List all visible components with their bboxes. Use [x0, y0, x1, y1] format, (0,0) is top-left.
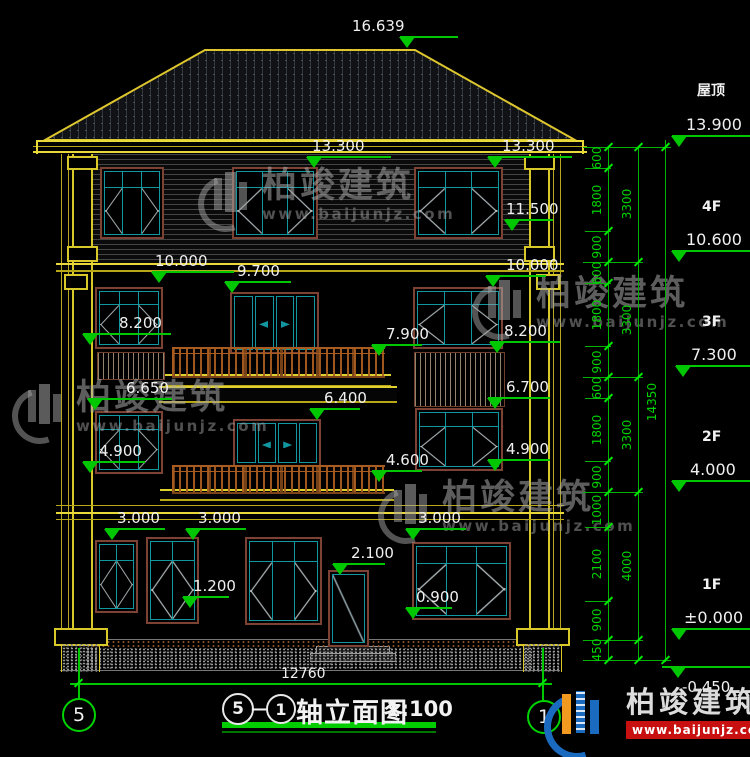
balcony-door-3f [230, 292, 319, 354]
eave-stub [36, 140, 38, 154]
level-value: ±0.000 [684, 608, 743, 627]
title-axis-to: 1 [266, 694, 296, 724]
floor-band [56, 263, 564, 265]
level-label: 2F [702, 429, 721, 445]
dim-value: 1000 [590, 495, 604, 526]
dim-value: 600 [590, 147, 604, 170]
elevation-value: 10.000 [155, 252, 208, 270]
entry-door [328, 570, 369, 647]
corner-pillar-left [72, 154, 93, 629]
balcony-railing-3f [172, 347, 385, 378]
dim-value: 3300 [620, 189, 634, 220]
axis-number: 5 [73, 704, 85, 726]
dim-value: 3300 [620, 305, 634, 336]
window-1f-left [146, 537, 199, 624]
drawing-scale: 1:100 [386, 697, 453, 721]
elevation-value: 7.900 [386, 325, 429, 343]
level-label: 屋顶 [697, 80, 725, 100]
window-1f-center [245, 537, 322, 625]
elevation-value: 3.000 [418, 509, 461, 527]
elevation-value: 8.200 [119, 314, 162, 332]
dim-chain-line [608, 147, 609, 660]
title-axis-from: 5 [222, 693, 254, 725]
dim-chain-line [665, 140, 666, 662]
hip-roof [30, 40, 590, 145]
pillar-corbel [64, 274, 88, 290]
dim-value: 900 [590, 609, 604, 632]
dim-value: 1800 [590, 300, 604, 331]
elevation-value: 0.900 [416, 588, 459, 606]
dim-value: 2100 [590, 549, 604, 580]
elevation-value: 3.000 [198, 509, 241, 527]
pillar-capital [524, 156, 555, 170]
elevation-value: 6.700 [506, 378, 549, 396]
elevation-value: 9.700 [237, 262, 280, 280]
spandrel-grille [97, 352, 165, 380]
dim-value: 3300 [620, 420, 634, 451]
level-value: 7.300 [691, 345, 737, 364]
floor-band [56, 270, 564, 272]
level-label: 1F [702, 577, 721, 593]
baijun-logo-icon [538, 686, 624, 752]
dim-value: 1800 [590, 185, 604, 216]
dim-value: 4000 [620, 551, 634, 582]
title-axis-number: 1 [275, 700, 286, 719]
level-label: 4F [702, 199, 721, 215]
dim-value: 600 [590, 262, 604, 285]
title-dash: — [251, 699, 267, 718]
elevation-value: 4.600 [386, 451, 429, 469]
elevation-value: 4.900 [506, 440, 549, 458]
level-value: 13.900 [686, 115, 742, 134]
logo-name: 柏竣建筑 [626, 686, 750, 719]
cad-elevation-canvas: 16.639 13.300 13.300 11.500 10.000 9.700… [0, 0, 750, 757]
dim-value: 450 [590, 639, 604, 662]
elevation-value: 11.500 [506, 200, 559, 218]
elevation-value: 16.639 [352, 17, 405, 35]
downspout-right [553, 154, 561, 630]
window-1f-small [95, 540, 138, 613]
balcony-railing-2f [172, 465, 385, 494]
ground-hatch-band [86, 640, 532, 648]
balcony-door-2f [233, 419, 321, 467]
elevation-value: 6.650 [126, 379, 169, 397]
axis-bubble-5: 5 [62, 698, 96, 732]
title-axis-number: 5 [232, 699, 244, 719]
window-4f-center [232, 167, 318, 239]
dim-chain-line [638, 147, 639, 660]
elevation-value: 13.300 [312, 137, 365, 155]
elevation-value: 4.900 [99, 442, 142, 460]
dim-value: 1800 [590, 415, 604, 446]
pillar-capital [67, 246, 98, 262]
window-4f-right [414, 167, 503, 239]
axis-extension [78, 648, 80, 698]
elevation-value: 13.300 [502, 137, 555, 155]
logo-url: www.baijunjz.com [626, 721, 750, 739]
dim-value: 900 [590, 351, 604, 374]
title-underline-thin [222, 731, 436, 733]
baijun-logo: 柏竣建筑 www.baijunjz.com [538, 686, 750, 752]
elevation-value: 8.200 [504, 322, 547, 340]
dim-value-total: 14350 [645, 383, 659, 421]
dim-value: 600 [590, 377, 604, 400]
dim-value: 900 [590, 466, 604, 489]
dim-value: 900 [590, 236, 604, 259]
window-4f-left [100, 167, 164, 239]
elevation-value: 2.100 [351, 544, 394, 562]
level-value: 4.000 [690, 460, 736, 479]
downspout-left [61, 154, 69, 630]
elevation-value: 10.000 [506, 256, 559, 274]
elevation-value: 6.400 [324, 389, 367, 407]
level-label: 3F [702, 314, 721, 330]
pillar-capital [67, 156, 98, 170]
level-value: 10.600 [686, 230, 742, 249]
overall-dim-line [70, 683, 552, 685]
overall-width-value: 12760 [281, 666, 326, 682]
belt-band [56, 505, 564, 506]
elevation-value: 1.200 [193, 577, 236, 595]
elevation-value: 3.000 [117, 509, 160, 527]
pillar-pedestal-left [61, 644, 100, 672]
